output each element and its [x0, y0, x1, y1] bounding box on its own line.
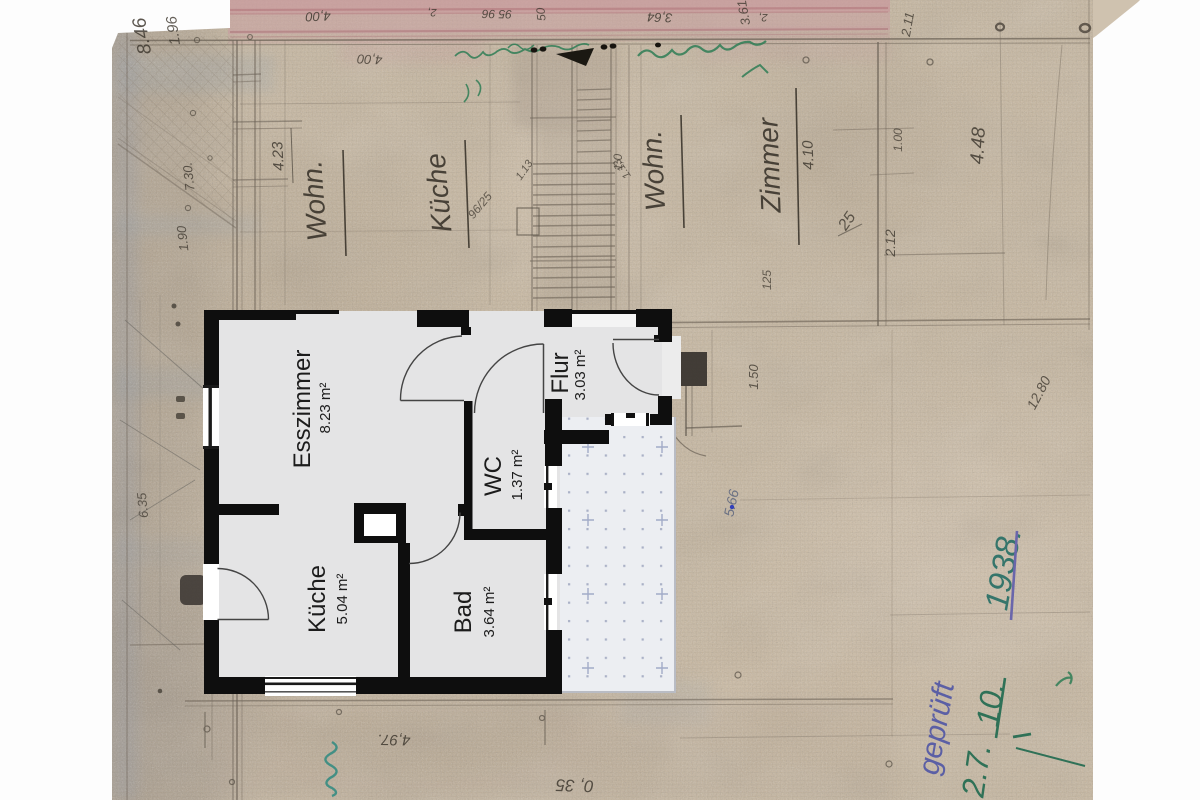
svg-text:50: 50	[533, 7, 548, 22]
svg-text:3,64: 3,64	[647, 10, 673, 26]
svg-text:2,: 2,	[427, 6, 437, 18]
svg-text:Küche: Küche	[304, 565, 331, 633]
svg-text:Flur: Flur	[547, 352, 574, 393]
svg-text:3.03 m²: 3.03 m²	[572, 350, 589, 401]
svg-text:2.7.: 2.7.	[954, 742, 997, 800]
svg-text:4.10: 4.10	[799, 140, 817, 170]
svg-text:Esszimmer: Esszimmer	[289, 350, 316, 469]
svg-text:4,00: 4,00	[304, 9, 331, 25]
svg-text:3.64 m²: 3.64 m²	[481, 587, 498, 638]
svg-text:4,97.: 4,97.	[377, 731, 411, 749]
svg-text:2,: 2,	[758, 11, 768, 23]
svg-text:4.48: 4.48	[967, 126, 990, 164]
svg-text:0, 35: 0, 35	[555, 775, 594, 795]
svg-text:4,00: 4,00	[356, 51, 383, 67]
svg-text:Bad: Bad	[450, 591, 477, 634]
svg-text:1.90: 1.90	[174, 224, 192, 251]
svg-text:WC: WC	[480, 456, 507, 496]
svg-text:2.12: 2.12	[882, 229, 898, 257]
svg-text:1.00: 1.00	[891, 128, 905, 152]
svg-text:1,0: 1,0	[611, 153, 626, 170]
svg-text:8.23 m²: 8.23 m²	[317, 383, 334, 434]
svg-text:Wohn.: Wohn.	[296, 159, 333, 242]
svg-text:6.35: 6.35	[134, 491, 151, 518]
svg-text:5.04 m²: 5.04 m²	[334, 574, 351, 625]
svg-text:1.50: 1.50	[746, 364, 761, 390]
svg-text:1.37 m²: 1.37 m²	[509, 450, 526, 501]
svg-text:125: 125	[760, 270, 774, 290]
svg-text:7.30.: 7.30.	[180, 161, 198, 191]
svg-text:4.23: 4.23	[269, 141, 288, 172]
svg-text:Zimmer: Zimmer	[752, 116, 786, 215]
svg-text:Wohn.: Wohn.	[636, 129, 671, 211]
svg-text:95 96: 95 96	[481, 7, 512, 22]
